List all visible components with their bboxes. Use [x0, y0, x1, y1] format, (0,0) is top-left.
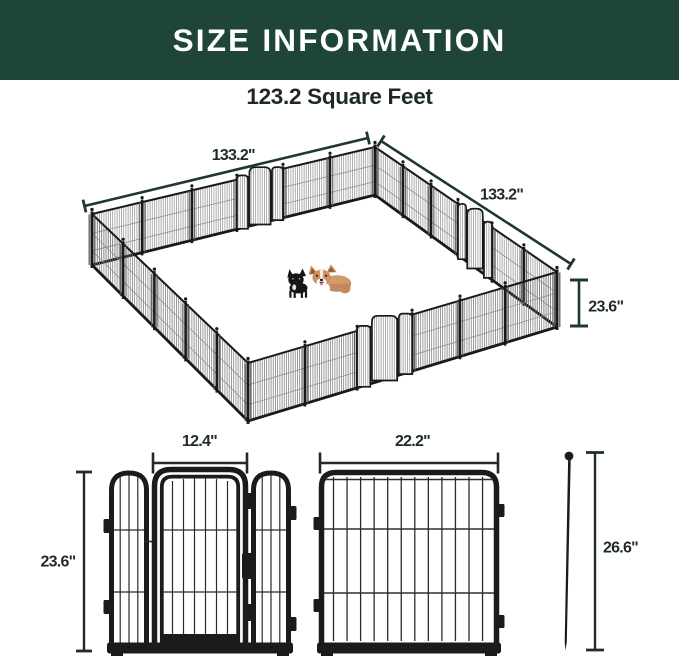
svg-text:23.6": 23.6" [588, 299, 623, 316]
svg-text:133.2": 133.2" [480, 186, 523, 203]
svg-text:26.6": 26.6" [603, 539, 638, 556]
svg-text:12.4": 12.4" [182, 433, 217, 450]
svg-text:23.6": 23.6" [41, 554, 76, 571]
svg-text:22.2": 22.2" [395, 433, 430, 450]
svg-text:133.2": 133.2" [212, 147, 255, 164]
